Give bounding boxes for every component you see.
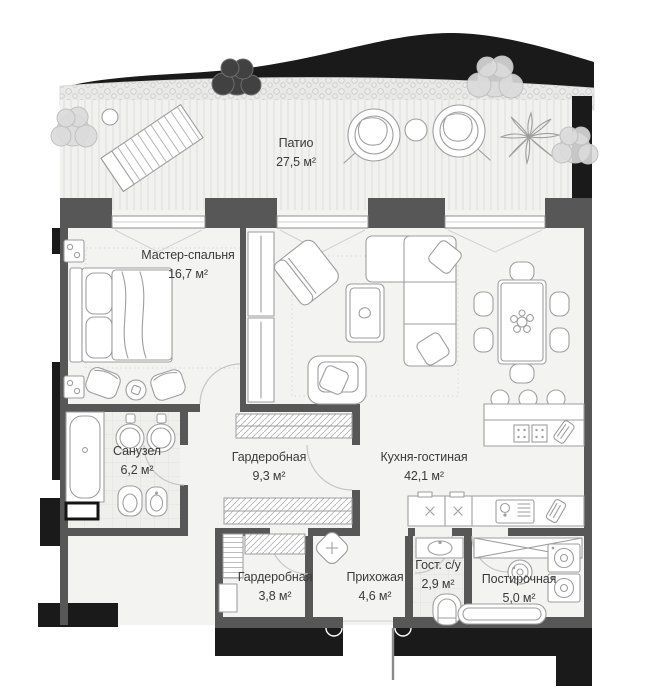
room-area: 42,1 м² bbox=[380, 467, 467, 486]
dining-table-icon bbox=[498, 280, 546, 364]
room-area: 9,3 м² bbox=[232, 467, 307, 486]
room-name: Патио bbox=[276, 134, 316, 153]
vanity-icon bbox=[416, 538, 463, 558]
storage-niche-icon bbox=[219, 584, 237, 612]
sconce-icon bbox=[64, 240, 84, 262]
kitchen-island-icon bbox=[484, 404, 584, 446]
room-name: Кухня-гостиная bbox=[380, 448, 467, 467]
room-name: Гост. с/у bbox=[415, 556, 461, 575]
room-label-kitchen-living: Кухня-гостиная 42,1 м² bbox=[380, 448, 467, 486]
patio-table-icon bbox=[405, 119, 427, 141]
room-label-laundry: Постирочная 5,0 м² bbox=[482, 570, 557, 608]
room-name: Санузел bbox=[113, 442, 161, 461]
storage-niche-icon bbox=[66, 503, 98, 519]
coffee-table-icon bbox=[346, 284, 384, 342]
room-area: 27,5 м² bbox=[276, 153, 316, 172]
kitchen-counter-icon bbox=[408, 492, 584, 526]
room-area: 6,2 м² bbox=[113, 461, 161, 480]
room-area: 5,0 м² bbox=[482, 589, 557, 608]
room-label-master-bedroom: Мастер-спальня 16,7 м² bbox=[141, 246, 234, 284]
room-name: Постирочная bbox=[482, 570, 557, 589]
room-name: Гардеробная bbox=[232, 448, 307, 467]
room-area: 4,6 м² bbox=[346, 587, 403, 606]
room-name: Мастер-спальня bbox=[141, 246, 234, 265]
side-table-icon bbox=[126, 380, 146, 400]
floor-plan: Патио 27,5 м² Мастер-спальня 16,7 м² Сан… bbox=[0, 0, 645, 700]
toilet-icon bbox=[433, 594, 461, 625]
room-label-wardrobe-large: Гардеробная 9,3 м² bbox=[232, 448, 307, 486]
tree-icon bbox=[212, 59, 261, 95]
room-area: 3,8 м² bbox=[238, 587, 313, 606]
toilet-icon bbox=[118, 486, 142, 516]
washing-machine-icon bbox=[548, 544, 580, 572]
patio-shade-icon bbox=[102, 109, 118, 125]
room-label-hallway: Прихожая 4,6 м² bbox=[346, 568, 403, 606]
room-area: 16,7 м² bbox=[141, 265, 234, 284]
room-label-wardrobe-small: Гардеробная 3,8 м² bbox=[238, 568, 313, 606]
room-name: Прихожая bbox=[346, 568, 403, 587]
sconce-icon bbox=[64, 376, 84, 398]
room-label-guest-wc: Гост. с/у 2,9 м² bbox=[415, 556, 461, 594]
room-label-bathroom: Санузел 6,2 м² bbox=[113, 442, 161, 480]
bidet-icon bbox=[146, 487, 167, 516]
bathtub-icon bbox=[66, 412, 104, 502]
room-area: 2,9 м² bbox=[415, 575, 461, 594]
room-label-patio: Патио 27,5 м² bbox=[276, 134, 316, 172]
armchair-icon bbox=[308, 356, 366, 404]
room-name: Гардеробная bbox=[238, 568, 313, 587]
